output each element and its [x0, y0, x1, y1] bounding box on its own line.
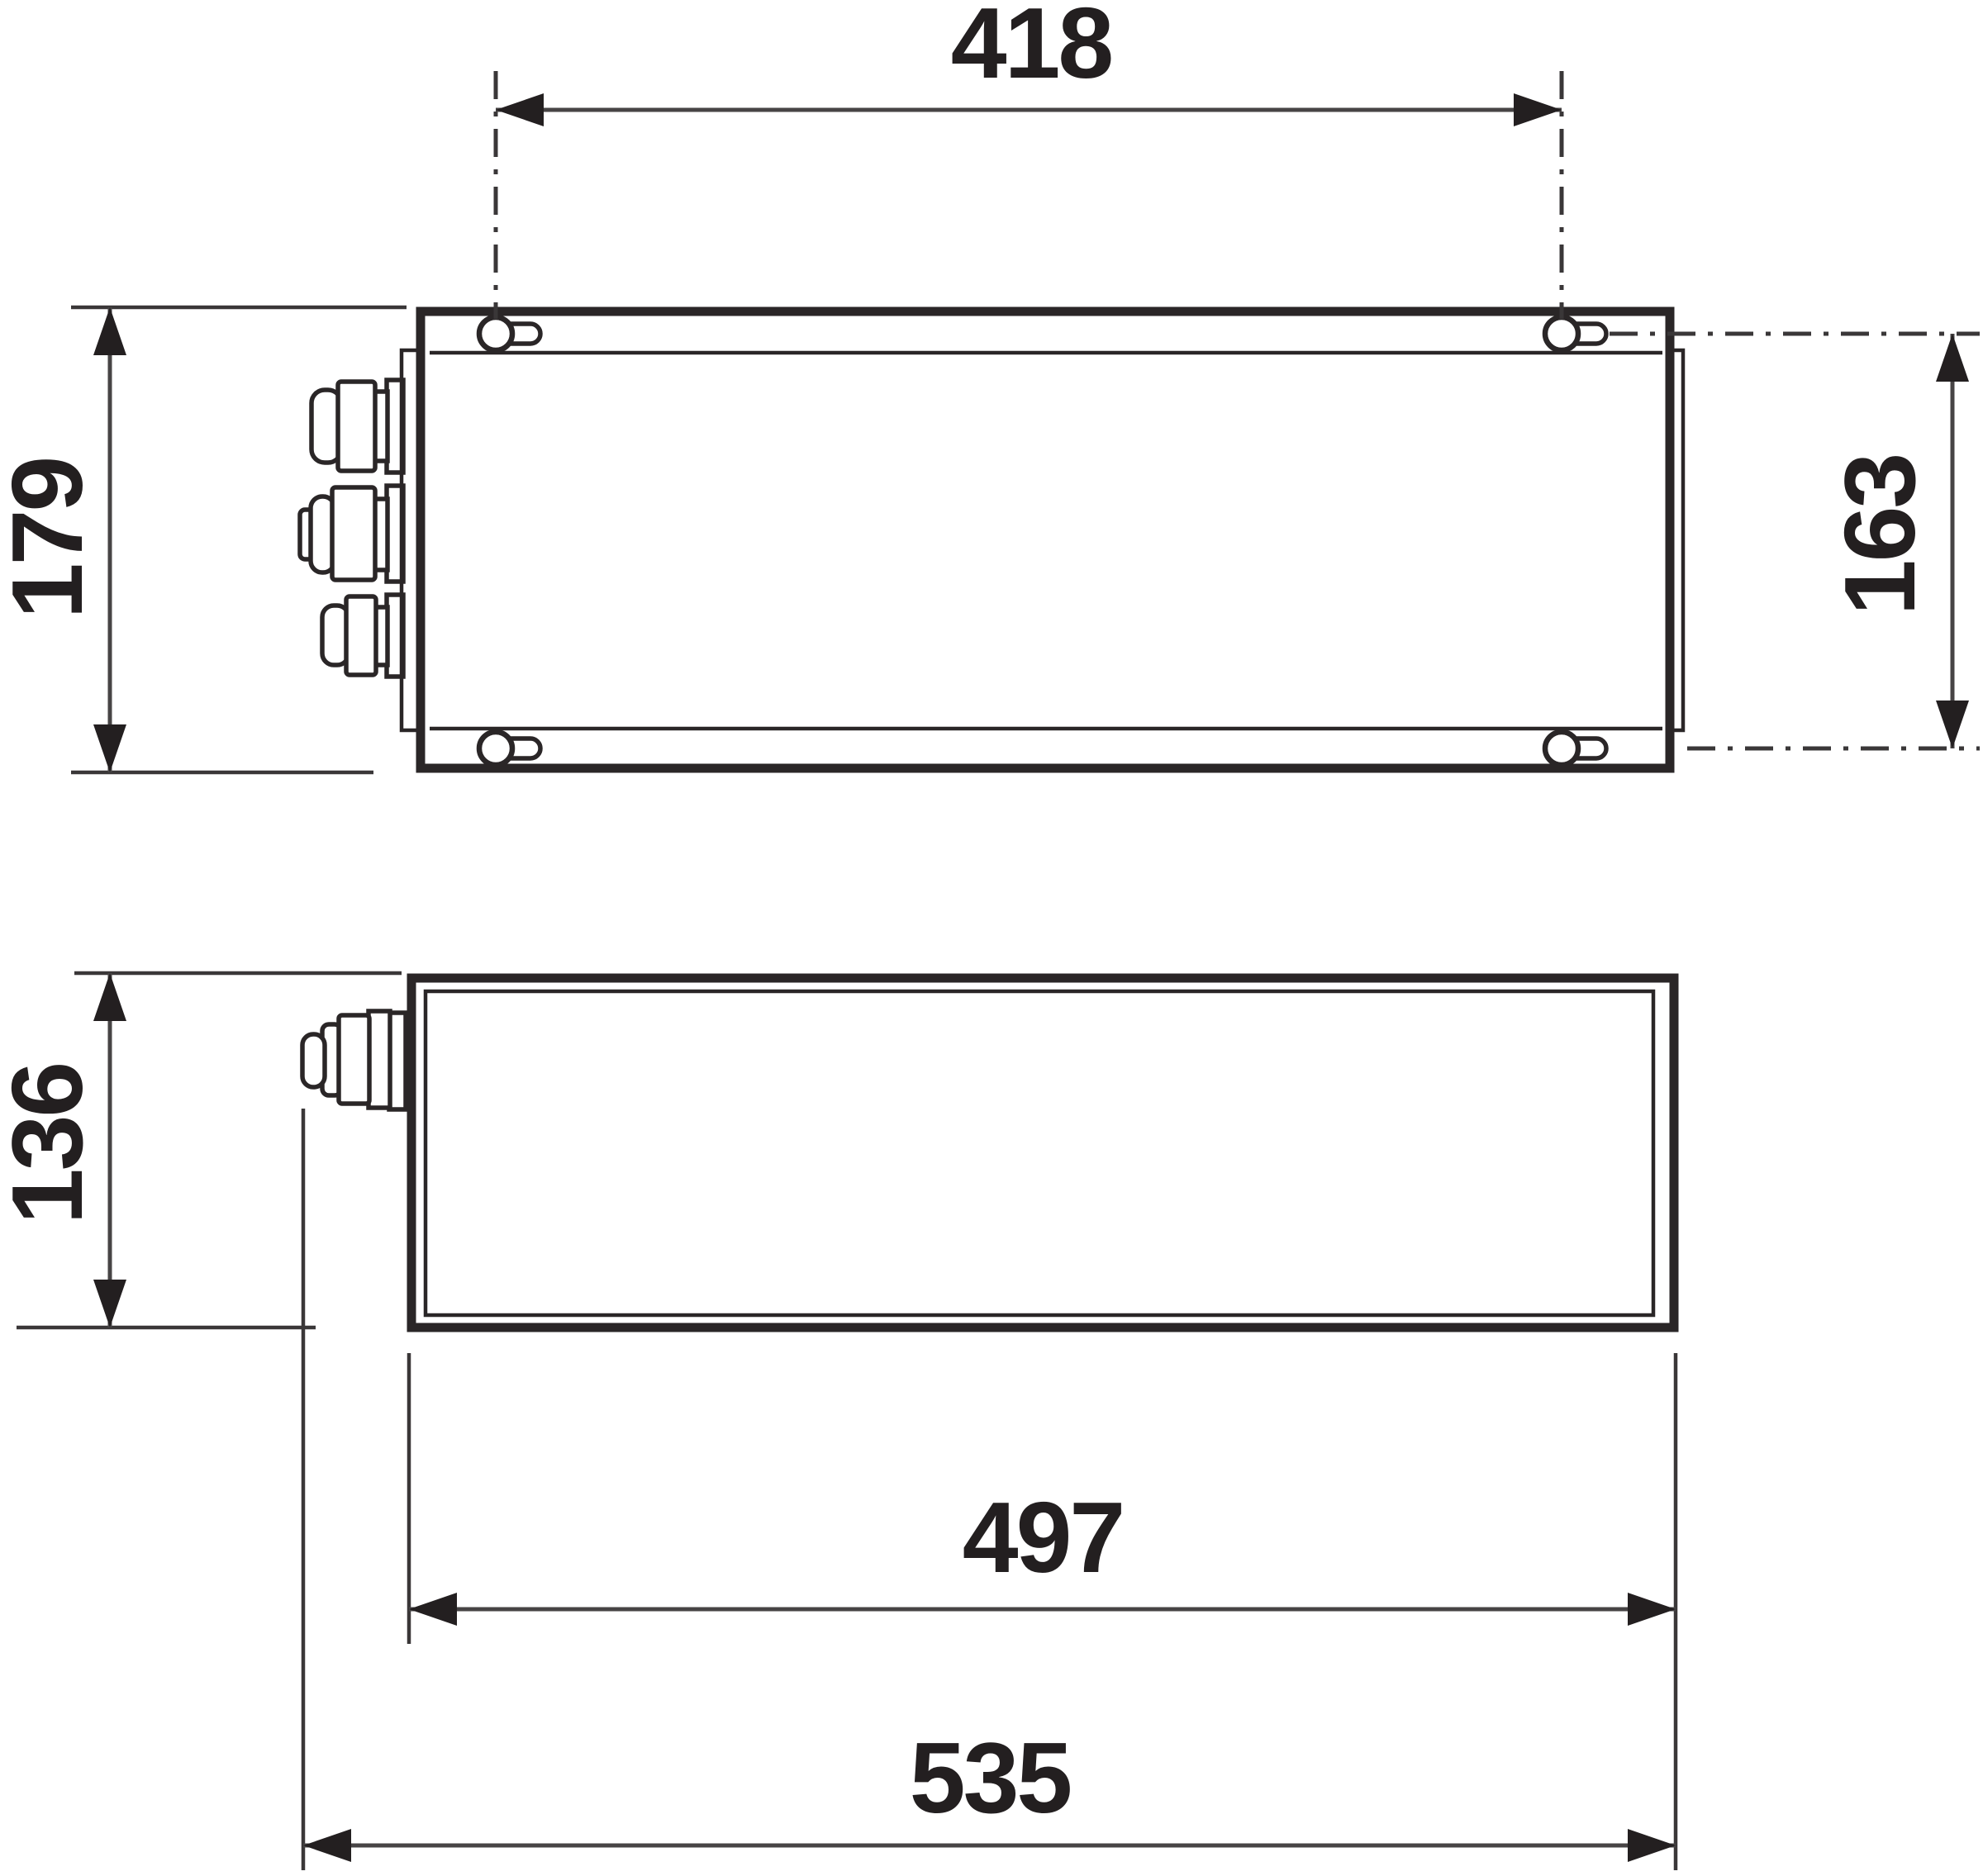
keyhole-slot-bottom-right — [1545, 732, 1606, 765]
gland-barrel — [332, 487, 375, 580]
dim-179-label: 179 — [0, 458, 103, 620]
arrowhead-right — [1628, 1829, 1676, 1862]
dimension-drawing: 418 179 163 136 497 — [0, 0, 1983, 1876]
dim-497-label: 497 — [963, 1481, 1124, 1593]
gland-collar — [369, 1011, 390, 1108]
cable-gland-top-3 — [322, 595, 403, 677]
gland-dome — [302, 1034, 325, 1087]
arrowhead-bottom — [93, 1280, 126, 1327]
dim-535-label: 535 — [910, 1722, 1071, 1834]
side-view-cover-line — [426, 991, 1653, 1315]
top-view-body — [421, 311, 1670, 768]
drawing-page: 418 179 163 136 497 — [0, 0, 1983, 1876]
cable-gland-side — [302, 1011, 406, 1109]
gland-barrel — [346, 596, 376, 675]
top-view — [300, 311, 1683, 768]
keyhole-slot-hole — [1545, 317, 1578, 350]
cable-gland-top-2 — [300, 486, 403, 582]
keyhole-slot-top-right — [1545, 317, 1606, 350]
arrowhead-left — [303, 1829, 351, 1862]
arrowhead-right — [1514, 93, 1562, 126]
arrowhead-left — [496, 93, 544, 126]
keyhole-slot-bottom-left — [479, 732, 540, 765]
arrowhead-right — [1628, 1593, 1676, 1626]
arrowhead-bottom — [1936, 701, 1969, 748]
arrowhead-top — [93, 307, 126, 355]
dim-136-label: 136 — [0, 1064, 103, 1225]
side-view-body — [411, 978, 1674, 1327]
gland-barrel — [339, 1015, 369, 1104]
dimension-163: 163 — [1610, 334, 1980, 748]
keyhole-slot-hole — [479, 732, 512, 765]
dimension-418: 418 — [496, 0, 1562, 319]
side-view — [302, 978, 1674, 1327]
arrowhead-top — [1936, 334, 1969, 382]
cable-gland-top-1 — [311, 380, 403, 473]
arrowhead-left — [409, 1593, 457, 1626]
keyhole-slot-hole — [1545, 732, 1578, 765]
keyhole-slot-hole — [479, 317, 512, 350]
arrowhead-top — [93, 973, 126, 1021]
arrowhead-bottom — [93, 724, 126, 772]
gland-barrel — [338, 382, 375, 471]
dim-163-label: 163 — [1824, 455, 1936, 616]
keyhole-slot-top-left — [479, 317, 540, 350]
dim-418-label: 418 — [951, 0, 1112, 99]
